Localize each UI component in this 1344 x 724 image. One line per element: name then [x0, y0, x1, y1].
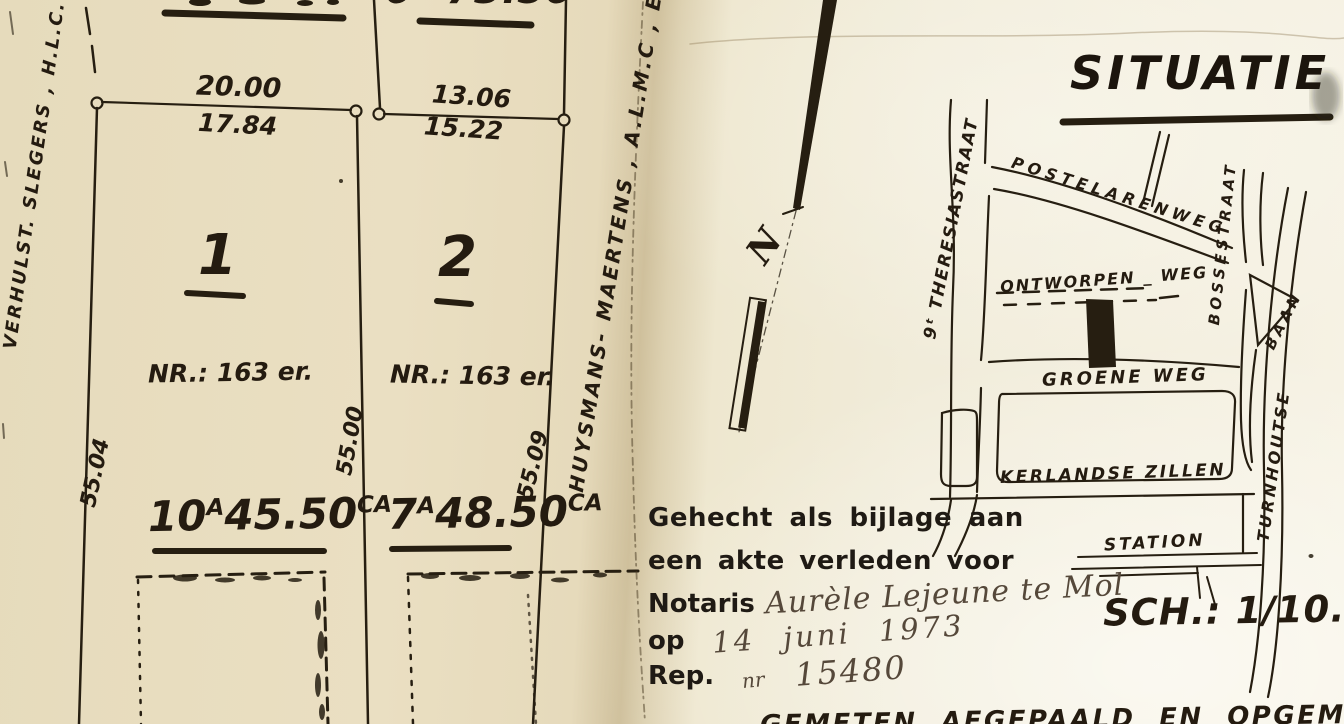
situatie-title: SITUATIE [1070, 50, 1330, 96]
left-boundary-dash-above [86, 8, 95, 72]
parcel1-cadastral-nr: NR.: 163 er. [148, 359, 313, 387]
parcel2-cadastral-nr: NR.: 163 er. [390, 362, 555, 390]
area-unit-are: A [417, 493, 435, 519]
notary-rep-number-handwritten: 15480 [794, 651, 908, 691]
area-value: 48.50 [435, 487, 569, 538]
parcel1-area: 10A45.50CA [148, 492, 393, 538]
top-strip-divider [374, 0, 380, 108]
area-unit-are: A [206, 495, 224, 521]
notary-notaris-label: Notaris [648, 591, 755, 617]
dim-seg2-bottom: 15.22 [423, 113, 504, 143]
survey-point [351, 106, 362, 117]
paper-wrinkle [690, 31, 1344, 44]
north-arrow-shaft [793, 0, 837, 210]
dim-seg1-top: 20.00 [196, 73, 282, 103]
dim-seg1-bottom: 17.84 [197, 110, 277, 139]
north-arrow-bar [729, 298, 765, 431]
survey-point [374, 109, 385, 120]
notary-line2: een akte verleden voor [648, 548, 1014, 574]
notary-op-label: op [648, 628, 684, 654]
strip-right-underline [420, 21, 531, 25]
footprint1-left [138, 580, 141, 724]
area-value: 10 [148, 491, 207, 541]
area-value: 7 [388, 489, 418, 539]
dim-seg2-top: 13.06 [431, 81, 512, 111]
scanned-survey-plan: VERHULST. SLEGERS , H.L.C. HUYSMANS- MAE… [0, 0, 1344, 724]
situatie-underline [1063, 117, 1330, 122]
top-right-boundary [564, 0, 566, 114]
parcel1-number: 1 [198, 228, 237, 284]
footprint1-right [324, 578, 328, 724]
left-boundary [79, 108, 97, 724]
scale-label: SCH.: 1/10.00 [1103, 589, 1344, 631]
area-value: 45.50 [224, 488, 358, 539]
parcel2-area: 7A48.50CA [388, 490, 603, 536]
parcel2-number-underline [437, 301, 471, 304]
subject-lot-marker [1086, 299, 1116, 368]
north-arrow-tick [783, 207, 803, 214]
footprint1-top [137, 572, 325, 577]
notary-rep-label: Rep. [648, 663, 714, 689]
notary-rep-nr: nr [741, 669, 765, 691]
survey-point [559, 115, 570, 126]
parcel1-number-underline [187, 293, 243, 296]
strip-left-underline [165, 13, 343, 18]
parcel2-number: 2 [438, 230, 477, 286]
footprint2-left [408, 577, 413, 724]
footprint2-artifact [528, 595, 536, 724]
notary-line1: Gehecht als bijlage aan [648, 505, 1024, 531]
strip-area-right-clipped: 0ᴬ 73.50 [385, 0, 573, 10]
parcel2-area-underline [392, 548, 509, 549]
area-unit-centiare: CA [568, 490, 603, 517]
